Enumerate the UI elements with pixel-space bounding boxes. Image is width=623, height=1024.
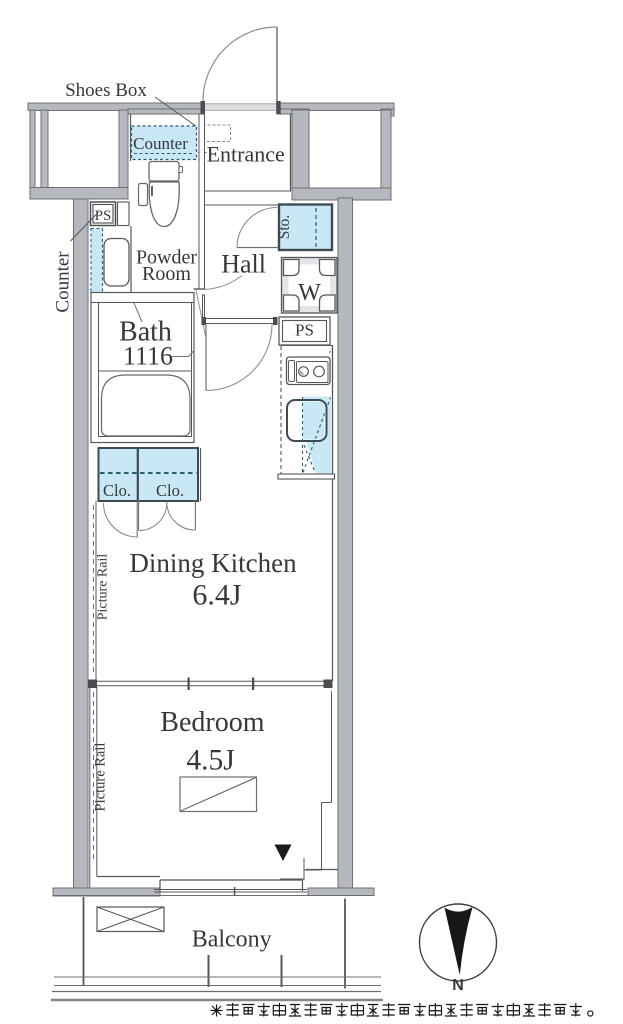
svg-text:Counter: Counter [53,251,74,313]
svg-text:Picture Rail: Picture Rail [96,554,111,621]
svg-text:W: W [298,280,321,306]
svg-text:Sto.: Sto. [276,215,293,240]
svg-text:Counter: Counter [133,134,188,153]
svg-text:Shoes Box: Shoes Box [65,80,147,101]
svg-text:PS: PS [295,321,314,340]
svg-text:Clo.: Clo. [103,481,131,500]
svg-text:1116: 1116 [123,342,173,371]
svg-text:4.5J: 4.5J [186,745,234,777]
svg-text:Clo.: Clo. [156,481,184,500]
svg-text:N: N [452,977,464,994]
svg-text:Room: Room [142,263,191,285]
svg-text:6.4J: 6.4J [192,579,242,612]
svg-text:Dining Kitchen: Dining Kitchen [129,548,297,578]
svg-text:Hall: Hall [221,250,266,279]
svg-text:Balcony: Balcony [192,927,272,953]
svg-text:Bedroom: Bedroom [160,707,264,738]
svg-text:Entrance: Entrance [207,142,285,167]
svg-text:Picture Rail: Picture Rail [93,743,109,812]
svg-text:PS: PS [95,208,112,224]
